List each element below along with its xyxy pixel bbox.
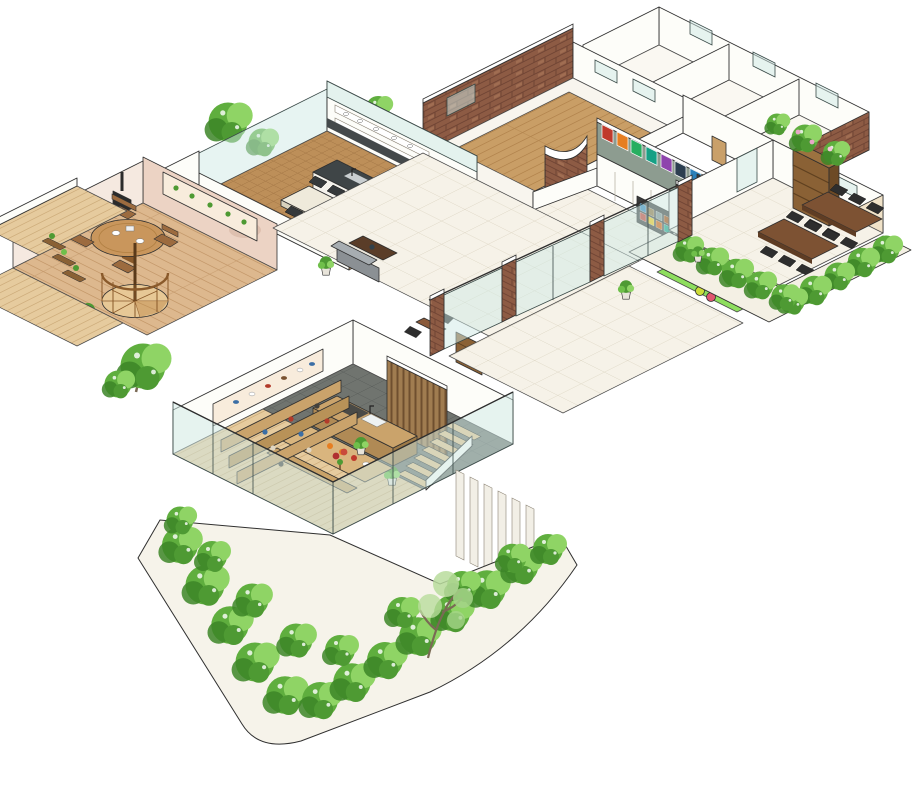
- table-top: [91, 220, 165, 257]
- tray: [369, 244, 374, 249]
- tree-icon: [102, 371, 135, 399]
- chair: [404, 326, 422, 338]
- illustration-canvas: [0, 0, 920, 787]
- isometric-floorplan: [0, 0, 920, 787]
- garden: [138, 507, 577, 745]
- open-book: [126, 226, 134, 231]
